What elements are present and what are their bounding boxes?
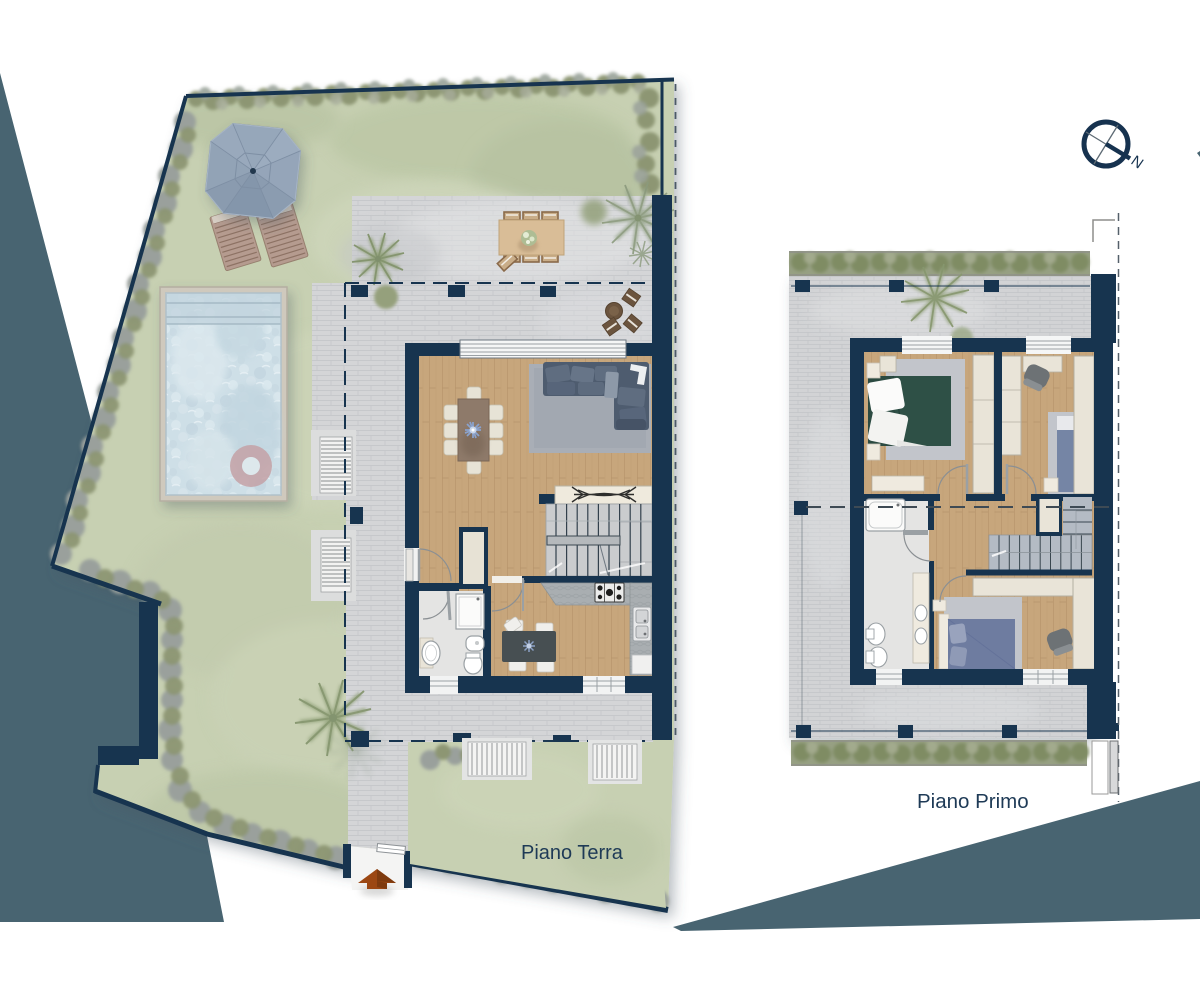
svg-text:Piano Primo: Piano Primo <box>917 790 1029 813</box>
svg-text:Piano Terra: Piano Terra <box>521 842 624 864</box>
